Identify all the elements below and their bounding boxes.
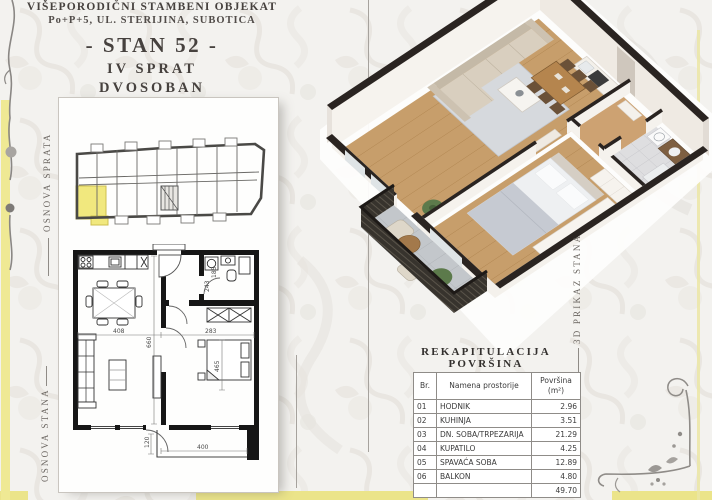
row-area: 12.89 <box>532 456 581 470</box>
apartment-type: DVOSOBAN <box>18 79 286 98</box>
row-area: 2.96 <box>532 400 581 414</box>
row-name: HODNIK <box>437 400 532 414</box>
col-header-area-word: Površina <box>540 376 572 385</box>
building-address: Po+P+5, UL. STERIJINA, SUBOTICA <box>18 14 286 27</box>
svg-text:185: 185 <box>211 266 218 278</box>
building-title: VIŠEPORODIČNI STAMBENI OBJEKAT <box>18 0 286 14</box>
unit-number: - STAN 52 - <box>18 30 286 60</box>
label-3d-prikaz-stana: 3D PRIKAZ STANA <box>572 232 582 344</box>
svg-text:408: 408 <box>113 328 125 335</box>
row-br: 06 <box>414 470 437 484</box>
pinstripe-left <box>296 355 297 488</box>
row-br: 03 <box>414 428 437 442</box>
row-name: SPAVAĆA SOBA <box>437 456 532 470</box>
row-name: DN. SOBA/TRPEZARIJA <box>437 428 532 442</box>
col-header-area-unit: (m²) <box>548 386 564 395</box>
label-osnova-stana: OSNOVA STANA <box>40 390 50 482</box>
total-area: 49.70 <box>532 484 581 498</box>
bed <box>198 340 251 380</box>
title-block: VIŠEPORODIČNI STAMBENI OBJEKAT Po+P+5, U… <box>18 0 286 98</box>
total-br-empty <box>414 484 437 498</box>
col-header-area: Površina (m²) <box>532 373 581 400</box>
svg-text:660: 660 <box>146 336 153 348</box>
sofa <box>78 334 96 408</box>
coffee-table <box>109 360 126 390</box>
col-header-name: Namena prostorije <box>437 373 532 400</box>
svg-text:243: 243 <box>204 280 211 292</box>
row-br: 02 <box>414 414 437 428</box>
table-row: 02 KUHINJA 3.51 <box>414 414 581 428</box>
svg-text:283: 283 <box>205 328 217 335</box>
label-osnova-stana-line-top <box>46 366 47 386</box>
row-br: 04 <box>414 442 437 456</box>
table-row: 01 HODNIK 2.96 <box>414 400 581 414</box>
label-osnova-sprata-line <box>48 238 49 276</box>
recap-table-title: REKAPITULACIJA POVRŠINA <box>388 346 584 370</box>
svg-text:400: 400 <box>197 444 209 451</box>
dining-table <box>86 281 142 325</box>
apartment-floor-plan-2d: 408 283 660 465 185 243 120 400 <box>61 244 275 488</box>
table-total-row: 49.70 <box>414 484 581 498</box>
plans-panel: 408 283 660 465 185 243 120 400 <box>58 97 279 493</box>
row-area: 3.51 <box>532 414 581 428</box>
windows <box>91 427 239 429</box>
row-name: KUPATILO <box>437 442 532 456</box>
row-name: KUHINJA <box>437 414 532 428</box>
building-floor-overview <box>63 106 274 246</box>
row-area: 4.80 <box>532 470 581 484</box>
wardrobe <box>207 308 251 322</box>
svg-text:465: 465 <box>214 360 221 372</box>
brochure-page: VIŠEPORODIČNI STAMBENI OBJEKAT Po+P+5, U… <box>0 0 712 500</box>
label-osnova-sprata: OSNOVA SPRATA <box>42 122 52 232</box>
kitchen <box>78 255 148 269</box>
recap-header-row: Br. Namena prostorije Površina (m²) <box>414 373 581 400</box>
row-br: 05 <box>414 456 437 470</box>
apartment-render-3d <box>320 0 712 362</box>
table-row: 04 KUPATILO 4.25 <box>414 442 581 456</box>
building-stairwell <box>161 186 178 210</box>
total-name-empty <box>437 484 532 498</box>
row-name: BALKON <box>437 470 532 484</box>
row-area: 21.29 <box>532 428 581 442</box>
table-row: 03 DN. SOBA/TRPEZARIJA 21.29 <box>414 428 581 442</box>
bottom-right-flourish-ornament <box>588 372 712 500</box>
table-row: 05 SPAVAĆA SOBA 12.89 <box>414 456 581 470</box>
row-br: 01 <box>414 400 437 414</box>
table-row: 06 BALKON 4.80 <box>414 470 581 484</box>
row-area: 4.25 <box>532 442 581 456</box>
col-header-br: Br. <box>414 373 437 400</box>
recap-table: Br. Namena prostorije Površina (m²) 01 H… <box>413 372 581 498</box>
floor-label: IV SPRAT <box>18 60 286 79</box>
svg-text:120: 120 <box>144 436 151 448</box>
